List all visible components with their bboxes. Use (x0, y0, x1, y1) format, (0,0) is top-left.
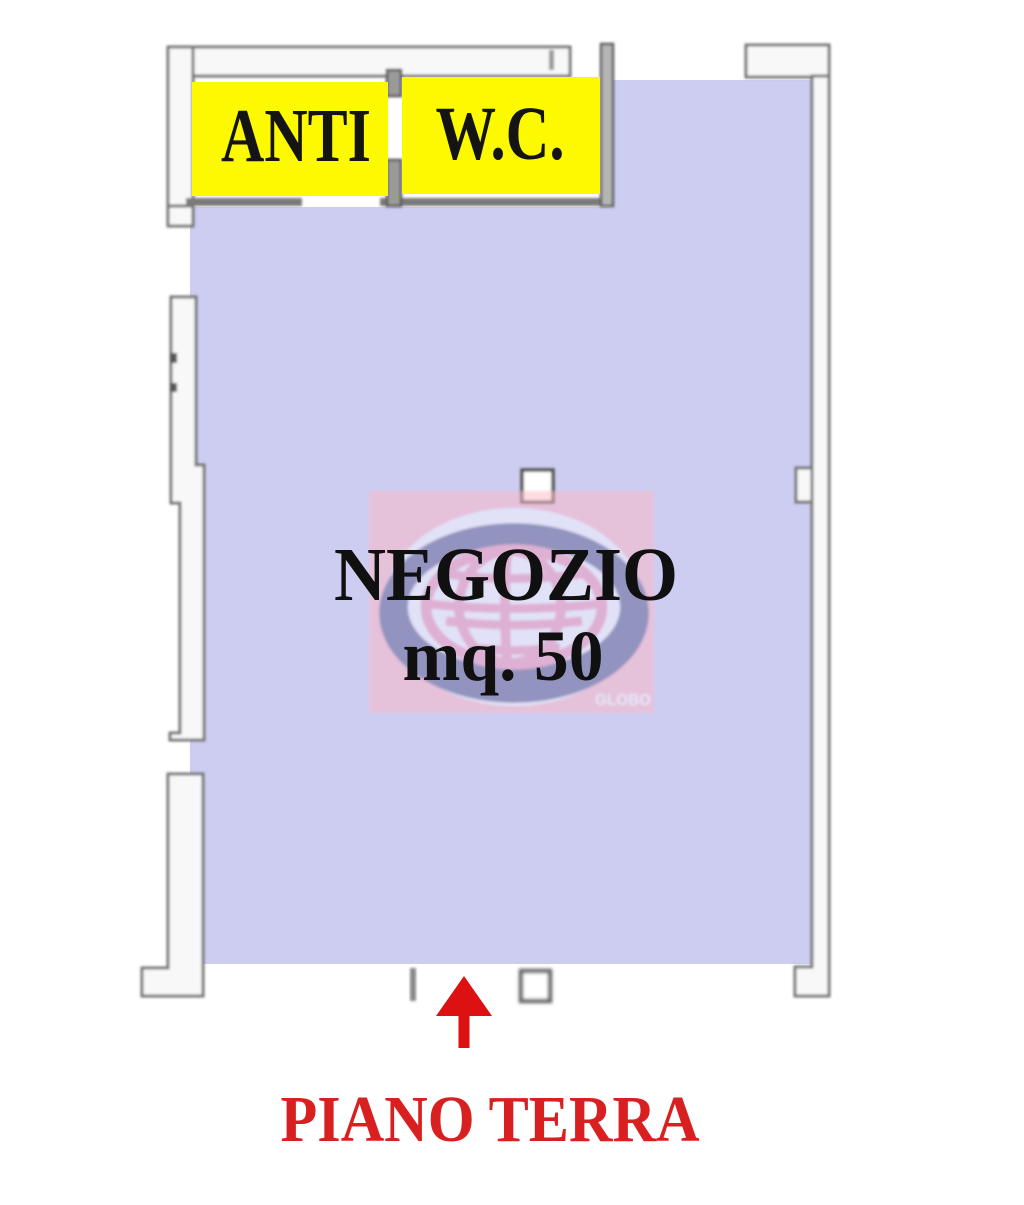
svg-text:NEGOZIO: NEGOZIO (334, 533, 678, 617)
svg-text:mq. 50: mq. 50 (403, 616, 604, 696)
svg-text:ANTI: ANTI (221, 94, 371, 178)
svg-text:PIANO TERRA: PIANO TERRA (281, 1083, 700, 1156)
svg-text:W.C.: W.C. (436, 92, 565, 176)
